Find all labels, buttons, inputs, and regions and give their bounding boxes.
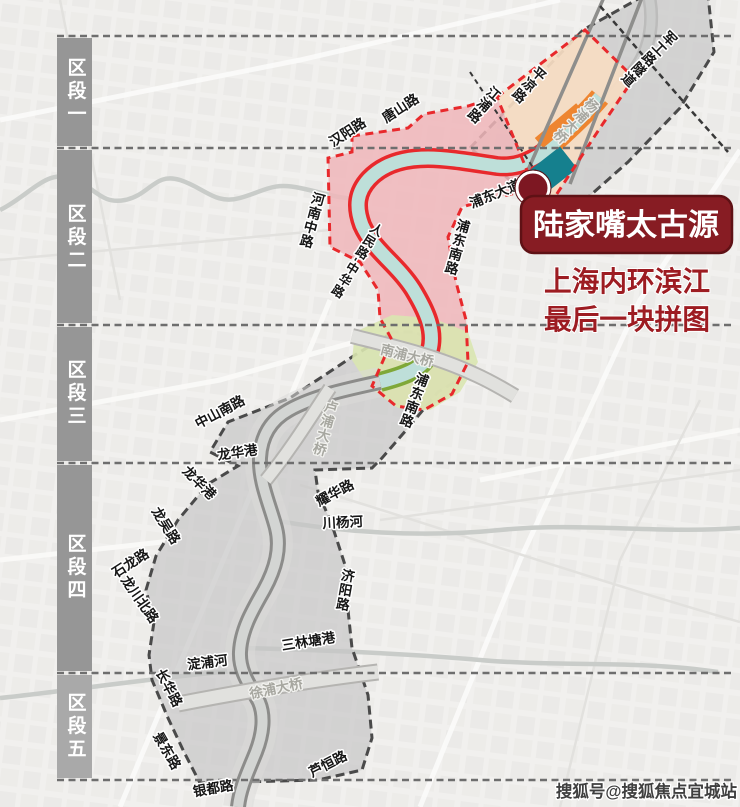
section-label-2: 区段二	[65, 204, 87, 273]
section-label-5: 区段五	[65, 693, 87, 762]
tagline-line1: 上海内环滨江	[544, 266, 710, 297]
tagline-line2: 最后一块拼图	[544, 304, 710, 335]
section-label-1: 区段一	[65, 58, 87, 127]
section-label-4: 区段四	[65, 534, 87, 603]
waterway-label-chuanyang: 川杨河	[321, 513, 364, 531]
project-callout-title: 陆家嘴太古源	[533, 209, 719, 242]
section-label-3: 区段三	[65, 360, 87, 429]
riverfront-map: 杨浦大桥 南浦大桥 卢浦大桥 徐浦大桥 军工路隧道 平凉路 江浦路 唐山路 汉阳…	[0, 0, 740, 807]
map-screenshot: 杨浦大桥 南浦大桥 卢浦大桥 徐浦大桥 军工路隧道 平凉路 江浦路 唐山路 汉阳…	[0, 0, 740, 807]
watermark: 搜狐号@搜狐焦点宜城站	[556, 781, 738, 801]
project-callout: 陆家嘴太古源	[521, 196, 732, 253]
